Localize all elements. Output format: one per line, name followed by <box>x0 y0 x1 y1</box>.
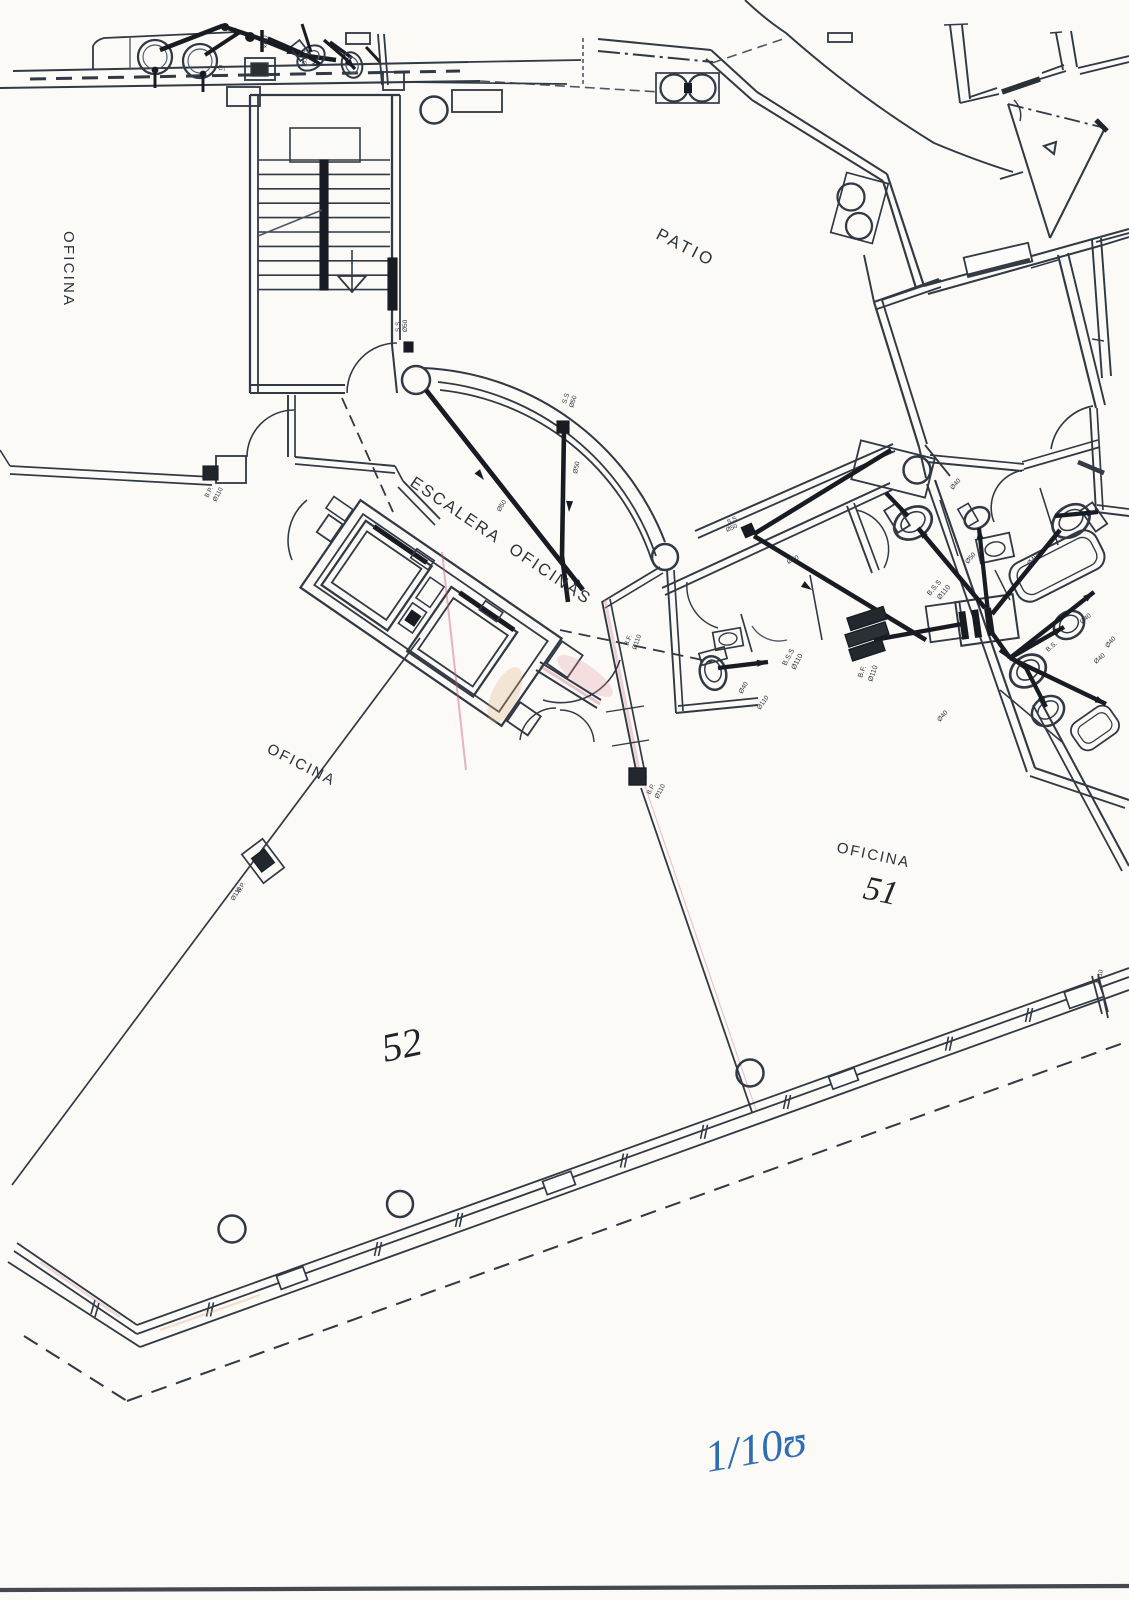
svg-text:S.S: S.S <box>395 321 402 332</box>
svg-text:OFICINA: OFICINA <box>60 231 77 307</box>
svg-text:C₁: C₁ <box>218 65 226 72</box>
svg-text:Ø50: Ø50 <box>402 319 409 332</box>
